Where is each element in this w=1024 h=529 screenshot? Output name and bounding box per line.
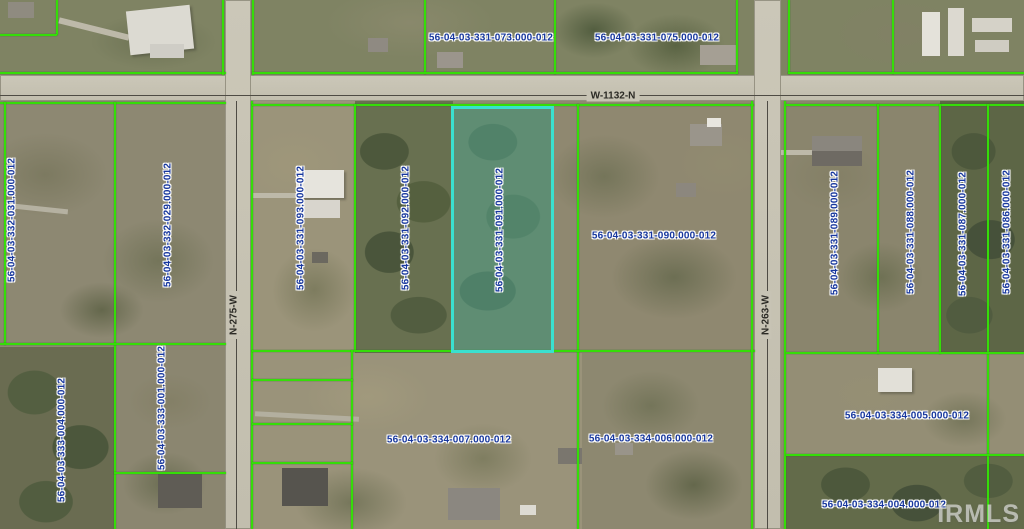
parcel-label-331-092: 56-04-03-331-092.000-012 — [401, 166, 412, 290]
parcel-boundary-line — [252, 379, 353, 381]
building — [437, 52, 463, 68]
parcel-boundary-line — [252, 462, 353, 464]
parcel-boundary-line — [351, 350, 353, 529]
building — [948, 8, 964, 56]
parcel-boundary-line — [252, 72, 738, 74]
parcel-label-333-001: 56-04-03-333-001.000-012 — [157, 346, 168, 470]
parcel-boundary-line — [788, 0, 790, 74]
parcel-label-331-093: 56-04-03-331-093.000-012 — [296, 166, 307, 290]
parcel-boundary-line — [0, 102, 226, 104]
road-label-n275w: N-275-W — [229, 291, 240, 339]
map-canvas[interactable]: 56-04-03-331-073.000-012 56-04-03-331-07… — [0, 0, 1024, 529]
parcel-boundary-line — [788, 72, 1024, 74]
parcel-boundary-line — [252, 423, 353, 425]
parcel-boundary-line — [577, 104, 579, 529]
building — [878, 368, 912, 392]
parcel-label-331-090: 56-04-03-331-090.000-012 — [592, 231, 716, 242]
building — [8, 2, 34, 18]
parcel-boundary-line — [114, 472, 226, 474]
road-centerline — [0, 95, 1024, 96]
parcel-label-331-087: 56-04-03-331-087.000-012 — [958, 172, 969, 296]
parcel-label-331-088: 56-04-03-331-088.000-012 — [906, 170, 917, 294]
parcel-boundary-line — [0, 343, 226, 345]
parcel-boundary-line — [222, 0, 224, 75]
building — [520, 505, 536, 515]
building — [158, 474, 202, 508]
road-label-n263w: N-263-W — [761, 291, 772, 339]
building — [922, 12, 940, 56]
parcel-boundary-line — [554, 0, 556, 74]
parcel-boundary-line — [0, 34, 57, 36]
building — [448, 488, 500, 520]
building — [972, 18, 1012, 32]
parcel-boundary-line — [251, 101, 253, 529]
parcel-boundary-line — [736, 0, 738, 74]
parcel-label-331-091: 56-04-03-331-091.000-012 — [495, 168, 506, 292]
parcel-label-332-029: 56-04-03-332-029.000-012 — [163, 163, 174, 287]
parcel-boundary-line — [354, 104, 356, 352]
parcel-label-334-004: 56-04-03-334-004.000-012 — [822, 500, 946, 511]
building — [707, 118, 721, 127]
parcel-boundary-line — [939, 104, 941, 354]
building — [282, 468, 328, 506]
parcel-label-334-005: 56-04-03-334-005.000-012 — [845, 411, 969, 422]
parcel-boundary-line — [877, 104, 879, 354]
building — [700, 45, 738, 65]
parcel-boundary-line — [0, 72, 226, 74]
parcel-label-331-073: 56-04-03-331-073.000-012 — [429, 33, 553, 44]
parcel-boundary-line — [987, 104, 989, 529]
building — [690, 124, 722, 146]
building — [615, 443, 633, 455]
parcel-boundary-line — [252, 0, 254, 75]
terrain-patch — [554, 101, 754, 353]
parcel-label-334-007: 56-04-03-334-007.000-012 — [387, 435, 511, 446]
building — [676, 183, 696, 197]
parcel-boundary-line — [751, 101, 753, 529]
parcel-label-331-075: 56-04-03-331-075.000-012 — [595, 33, 719, 44]
building — [975, 40, 1009, 52]
parcel-boundary-line — [424, 0, 426, 74]
parcel-label-333-004: 56-04-03-333-004.000-012 — [57, 378, 68, 502]
parcel-label-331-089: 56-04-03-331-089.000-012 — [830, 171, 841, 295]
parcel-boundary-line — [784, 101, 786, 529]
watermark-irmls: IRMLS — [937, 500, 1020, 529]
parcel-boundary-line — [114, 102, 116, 529]
parcel-boundary-line — [786, 352, 1024, 354]
road-w1132n — [0, 75, 1024, 101]
building — [368, 38, 388, 52]
road-n275w — [225, 0, 251, 529]
terrain-patch — [0, 101, 226, 347]
parcel-label-334-006: 56-04-03-334-006.000-012 — [589, 434, 713, 445]
building — [812, 136, 862, 166]
parcel-label-332-031: 56-04-03-332-031.000-012 — [7, 158, 18, 282]
parcel-boundary-line — [892, 0, 894, 74]
road-label-w1132n: W-1132-N — [587, 91, 640, 102]
building — [312, 252, 328, 263]
parcel-label-331-086: 56-04-03-331-086.000-012 — [1002, 170, 1013, 294]
building — [150, 44, 184, 58]
parcel-boundary-line — [786, 454, 1024, 456]
parcel-boundary-line — [56, 0, 58, 35]
